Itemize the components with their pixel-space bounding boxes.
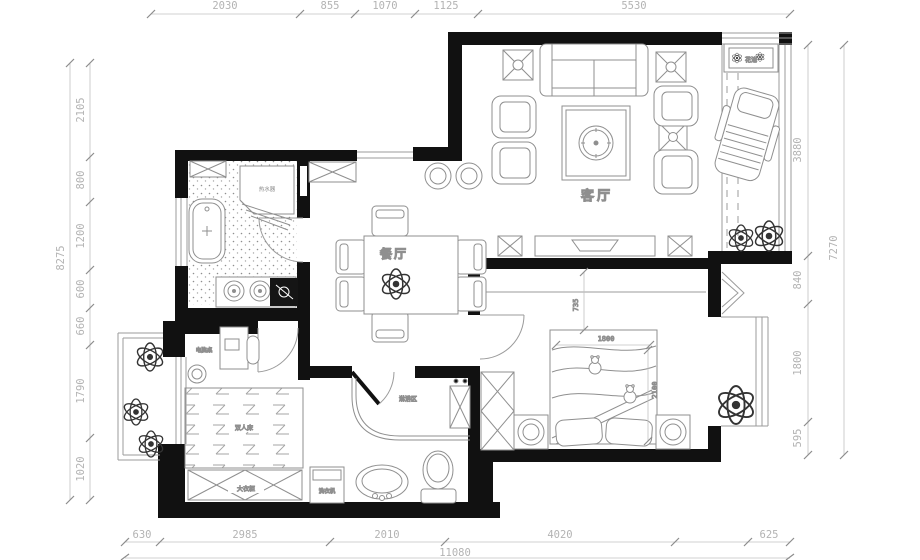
dim-left-6: 1020 — [75, 456, 87, 481]
dim-right-2: 1800 — [792, 350, 804, 375]
bathtub-icon — [189, 199, 225, 263]
dim-bottom-2: 2010 — [374, 529, 399, 541]
bed-offset-dim: 735 — [572, 299, 580, 312]
living-room: 客厅 — [492, 44, 698, 256]
washing-machine-icon — [310, 467, 344, 503]
sink-icon — [270, 278, 298, 306]
dim-left-2: 1200 — [75, 223, 87, 248]
bed2-label: 双人床 — [235, 424, 253, 432]
dim-left-5: 1790 — [75, 378, 87, 403]
shower-label: 淋浴区 — [399, 395, 417, 403]
coffee-table-icon — [562, 106, 630, 180]
dim-right-3: 595 — [792, 429, 804, 448]
dim-bottom-1: 2985 — [232, 529, 257, 541]
basin-icon — [356, 465, 408, 501]
dim-right-0: 3880 — [792, 137, 804, 162]
washer-label: 洗衣机 — [319, 487, 336, 495]
shoe-cabinet-icon — [309, 162, 356, 182]
bed-depth-dim: 2100 — [651, 382, 659, 399]
dim-left-3: 600 — [75, 280, 87, 299]
dim-bottom-4: 625 — [760, 529, 779, 541]
floor-plan-drawing: 热水器 餐厅 — [0, 0, 920, 560]
plant-icon — [727, 221, 786, 251]
dim-left-0: 2105 — [75, 97, 87, 122]
tv-cabinet-icon — [498, 236, 692, 256]
double-bed-icon — [550, 330, 657, 447]
desk-label: 电脑桌 — [196, 346, 213, 354]
dim-top-4: 5530 — [621, 0, 646, 12]
dimensions-left: 2105 800 1200 600 660 1790 1020 8275 — [55, 59, 94, 504]
wardrobe-icon — [481, 372, 514, 450]
dim-right-1: 840 — [792, 271, 804, 290]
dim-bottom-3: 4020 — [547, 529, 572, 541]
dining-room: 餐厅 — [336, 206, 486, 342]
floor-plan: 热水器 餐厅 — [0, 0, 920, 560]
dim-top-1: 855 — [321, 0, 340, 12]
dim-bottom-0: 630 — [133, 529, 152, 541]
lounge-chair-icon — [706, 84, 788, 185]
toilet-icon — [421, 451, 456, 503]
stool-icon — [425, 163, 482, 189]
dining-room-label: 餐厅 — [380, 246, 408, 261]
left-balcony-plants — [122, 343, 165, 457]
dim-left-total: 8275 — [55, 245, 67, 270]
cabinet-icon — [190, 161, 226, 177]
dim-top-2: 1070 — [372, 0, 397, 12]
dimensions-right: 3880 840 1800 595 7270 — [792, 41, 848, 459]
second-bedroom: 电脑桌 双人床 大衣柜 — [185, 327, 303, 500]
dim-top-3: 1125 — [433, 0, 458, 12]
entry — [309, 162, 482, 189]
bed-width-dim: 1800 — [598, 335, 615, 343]
heater-label: 热水器 — [259, 185, 276, 193]
dim-left-1: 800 — [75, 171, 87, 190]
kitchen-bath-room: 热水器 — [188, 161, 298, 307]
sofa-icon — [540, 44, 648, 96]
bathroom: 淋浴区 洗衣机 — [310, 378, 470, 503]
dim-right-total: 7270 — [828, 235, 840, 260]
dim-top-0: 2030 — [212, 0, 237, 12]
desk-icon — [188, 327, 259, 383]
dining-table-icon — [364, 236, 458, 314]
wardrobe-label: 大衣柜 — [237, 485, 255, 493]
dim-left-4: 660 — [75, 317, 87, 336]
bay-window-plant — [715, 386, 756, 424]
dimensions-top: 2030 855 1070 1125 5530 — [147, 0, 794, 18]
duct-icon — [450, 379, 470, 428]
dimensions-bottom: 630 2985 2010 4020 625 11080 — [121, 529, 794, 560]
master-bedroom: 735 1800 2100 — [481, 268, 690, 450]
wardrobe2-icon — [188, 470, 302, 500]
dim-bottom-total: 11080 — [439, 547, 471, 559]
planter-label: 花池 — [745, 56, 757, 64]
living-room-label: 客厅 — [581, 188, 613, 204]
right-balcony: 花池 — [706, 44, 788, 251]
